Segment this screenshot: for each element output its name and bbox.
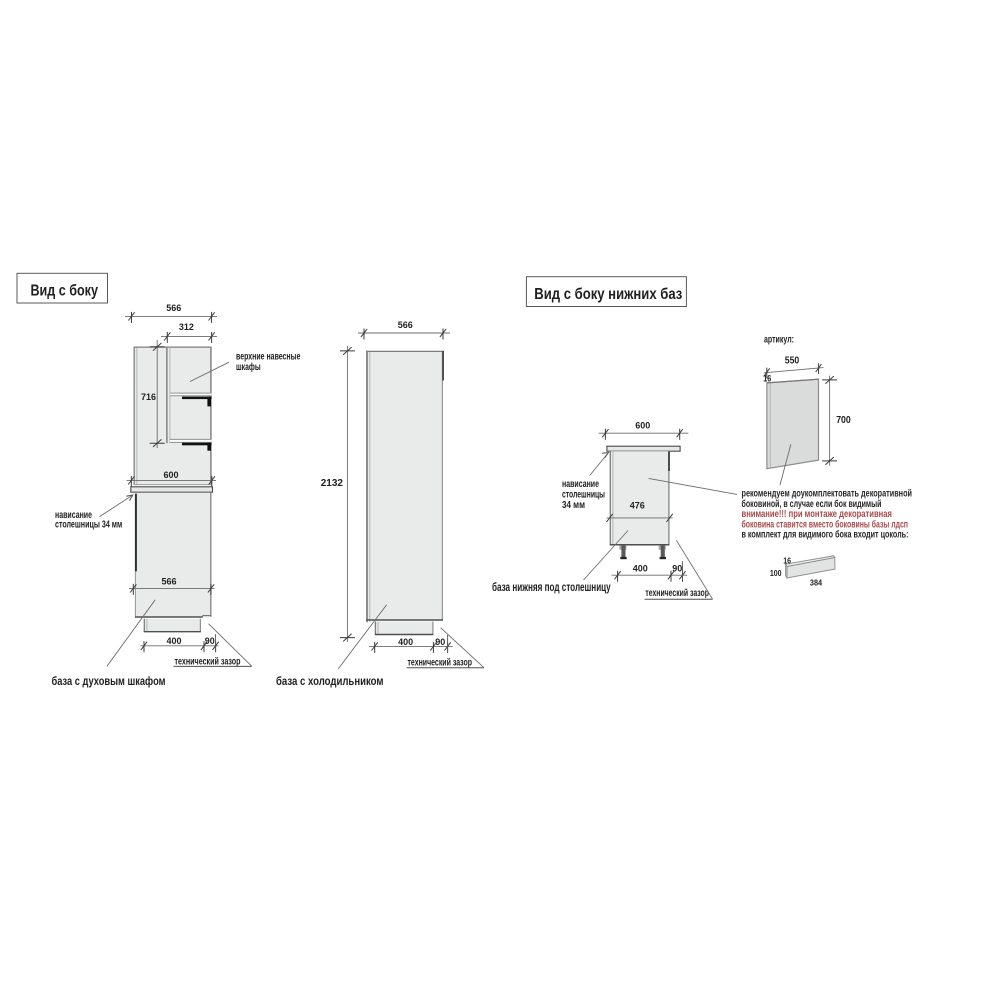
svg-text:90: 90 — [672, 564, 682, 574]
svg-text:столешницы 34 мм: столешницы 34 мм — [55, 519, 122, 531]
svg-text:384: 384 — [810, 578, 823, 587]
svg-text:550: 550 — [785, 355, 800, 367]
svg-text:в комплект для видимого бока в: в комплект для видимого бока входит цоко… — [742, 529, 909, 541]
svg-text:566: 566 — [161, 576, 176, 586]
svg-text:400: 400 — [166, 636, 181, 646]
svg-text:90: 90 — [435, 637, 445, 647]
svg-text:90: 90 — [205, 636, 215, 646]
svg-text:база нижняя под столешницу: база нижняя под столешницу — [492, 580, 611, 594]
svg-text:шкафы: шкафы — [236, 361, 261, 373]
svg-text:2132: 2132 — [321, 478, 344, 489]
svg-text:400: 400 — [398, 637, 413, 647]
svg-text:база с духовым шкафом: база с духовым шкафом — [52, 674, 166, 688]
svg-text:100: 100 — [770, 569, 782, 578]
svg-text:16: 16 — [783, 556, 791, 565]
svg-text:600: 600 — [163, 470, 178, 480]
svg-text:600: 600 — [635, 421, 650, 431]
svg-text:Вид с боку нижних баз: Вид с боку нижних баз — [534, 286, 682, 303]
svg-text:технический зазор: технический зазор — [175, 655, 241, 667]
svg-text:база с холодильником: база с холодильником — [276, 674, 384, 688]
svg-text:400: 400 — [633, 564, 648, 574]
svg-text:технический зазор: технический зазор — [408, 657, 473, 669]
svg-text:700: 700 — [836, 414, 851, 426]
svg-text:476: 476 — [630, 500, 645, 510]
svg-text:артикул:: артикул: — [764, 333, 794, 345]
svg-text:566: 566 — [398, 320, 413, 330]
svg-text:312: 312 — [179, 322, 194, 332]
svg-text:34 мм: 34 мм — [562, 499, 585, 511]
svg-text:566: 566 — [166, 303, 181, 313]
svg-text:технический зазор: технический зазор — [645, 587, 709, 599]
svg-text:716: 716 — [141, 392, 156, 402]
svg-text:Вид с боку: Вид с боку — [30, 283, 98, 300]
